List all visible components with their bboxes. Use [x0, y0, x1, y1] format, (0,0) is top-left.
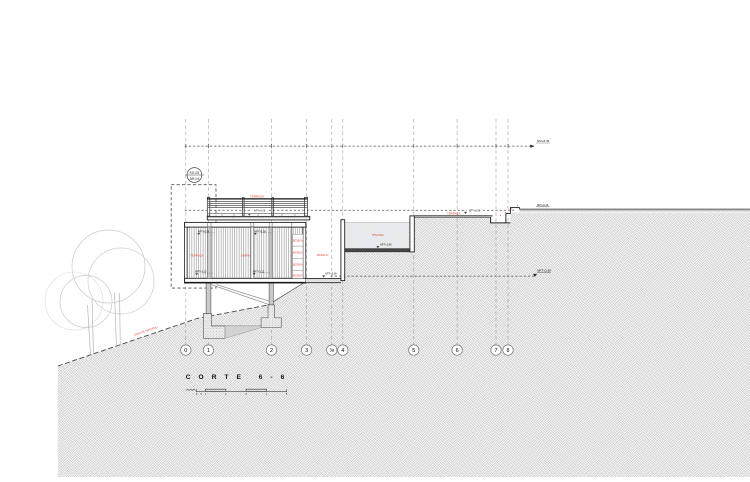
svg-text:0: 0: [184, 348, 187, 354]
svg-text:NIV+8.45: NIV+8.45: [537, 139, 550, 143]
svg-text:8: 8: [507, 348, 510, 354]
svg-text:4: 4: [341, 348, 344, 354]
svg-text:NPT+8.08: NPT+8.08: [469, 209, 481, 212]
svg-text:NPT+1.86: NPT+1.86: [380, 243, 392, 246]
svg-text:3: 3: [305, 348, 308, 354]
svg-text:TERRAZA: TERRAZA: [190, 254, 204, 258]
svg-text:ES-05: ES-05: [190, 171, 200, 175]
svg-text:NPT+6.08: NPT+6.08: [254, 209, 266, 212]
svg-text:TERRAZA: TERRAZA: [250, 195, 264, 199]
svg-text:TERRAZA: TERRAZA: [447, 212, 461, 216]
svg-text:5: 5: [412, 348, 415, 354]
svg-text:AR-04: AR-04: [190, 177, 200, 181]
svg-text:NPT+3.38: NPT+3.38: [325, 272, 337, 275]
svg-text:CORTE 6-6: CORTE 6-6: [186, 374, 292, 381]
svg-text:PISCINA: PISCINA: [372, 233, 384, 237]
svg-text:NPT+3.38: NPT+3.38: [537, 268, 551, 272]
svg-text:7: 7: [495, 348, 498, 354]
svg-text:BODEGA: BODEGA: [293, 274, 303, 277]
svg-text:DORM: DORM: [241, 254, 250, 258]
svg-text:BODEGA: BODEGA: [293, 264, 303, 267]
svg-text:BODEGA: BODEGA: [293, 252, 303, 255]
svg-text:BODEGA: BODEGA: [293, 240, 303, 243]
svg-text:NPT+9.18: NPT+9.18: [537, 204, 549, 207]
svg-text:PASILLO: PASILLO: [317, 253, 330, 257]
svg-text:1: 1: [207, 348, 210, 354]
svg-text:3a: 3a: [329, 348, 334, 353]
svg-text:2: 2: [270, 348, 273, 354]
svg-text:6: 6: [456, 348, 459, 354]
